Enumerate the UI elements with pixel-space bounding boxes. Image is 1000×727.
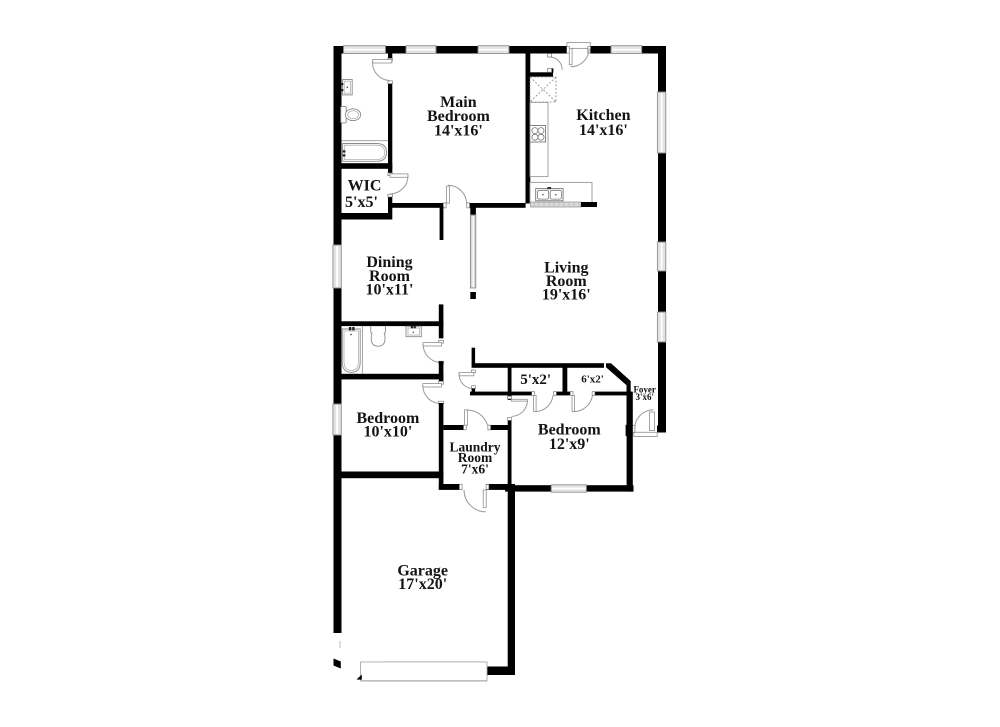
svg-text:3'x6': 3'x6' <box>635 392 654 402</box>
svg-text:WIC: WIC <box>348 178 382 195</box>
svg-text:17'x20': 17'x20' <box>398 576 447 593</box>
svg-text:10'x10': 10'x10' <box>363 424 412 441</box>
svg-text:10'x11': 10'x11' <box>365 282 413 299</box>
svg-text:14'x16': 14'x16' <box>434 123 483 140</box>
svg-text:14'x16': 14'x16' <box>579 122 628 139</box>
svg-text:12'x9': 12'x9' <box>549 436 590 453</box>
svg-text:7'x6': 7'x6' <box>461 462 489 477</box>
svg-text:5'x2': 5'x2' <box>520 372 551 388</box>
svg-text:19'x16': 19'x16' <box>542 287 591 304</box>
svg-text:5'x5': 5'x5' <box>345 194 378 211</box>
svg-text:6'x2': 6'x2' <box>581 374 604 386</box>
